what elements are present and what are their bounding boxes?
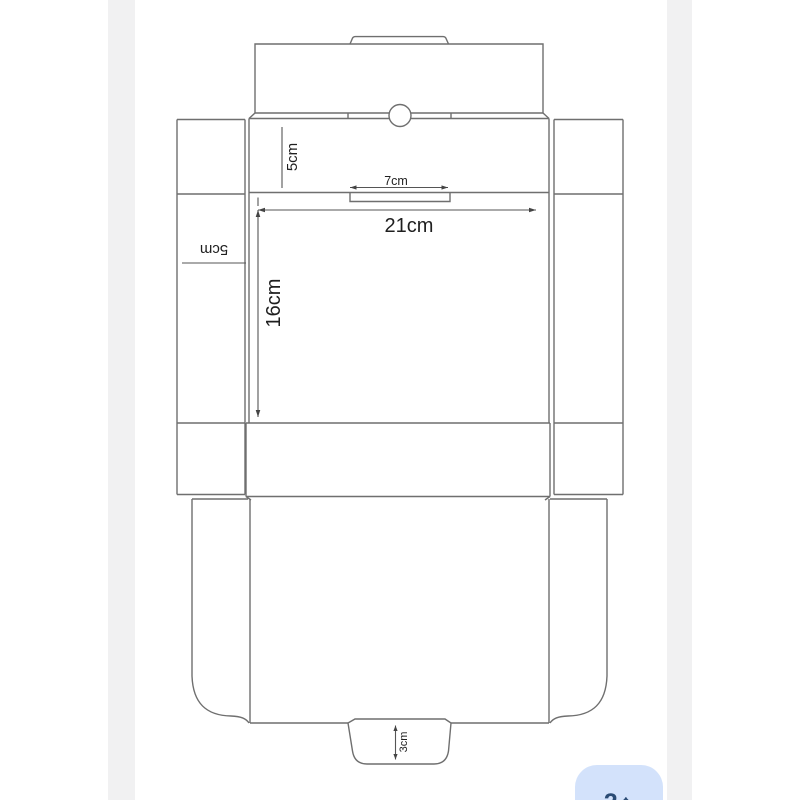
top-tab-outline xyxy=(350,37,449,44)
overlay-pill-button[interactable]: 2↑ xyxy=(575,765,663,800)
bottom-wing-left xyxy=(192,499,249,723)
label-lid-front-height: 5cm xyxy=(284,137,300,177)
label-panel-height: 16cm xyxy=(263,268,285,338)
overlay-pill-label: 2↑ xyxy=(575,789,663,800)
side-flaps-left-outline xyxy=(177,120,245,495)
tuck-tab-outline xyxy=(350,193,450,202)
lid-top-flap-outline xyxy=(255,44,543,113)
label-panel-width: 21cm xyxy=(369,215,449,237)
bottom-wing-right xyxy=(550,499,607,723)
box-dieline-drawing xyxy=(0,0,800,800)
dimension-arrowheads xyxy=(256,185,536,759)
bottom-panel-folds xyxy=(250,499,549,723)
back-strip-outline xyxy=(246,423,550,497)
thumb-hole-circle xyxy=(389,105,411,127)
side-flaps-right-outline xyxy=(554,120,623,495)
product-photo-view: 5cm 7cm 21cm 16cm 5cm 3cm 2↑ xyxy=(0,0,800,800)
label-tuck-tab-width: 7cm xyxy=(374,173,418,188)
label-side-flap-width: 5cm xyxy=(189,241,239,258)
dim-line-panel-width xyxy=(258,198,536,211)
dimension-lines xyxy=(182,127,536,760)
label-bottom-tab-height: 3cm xyxy=(398,722,410,762)
